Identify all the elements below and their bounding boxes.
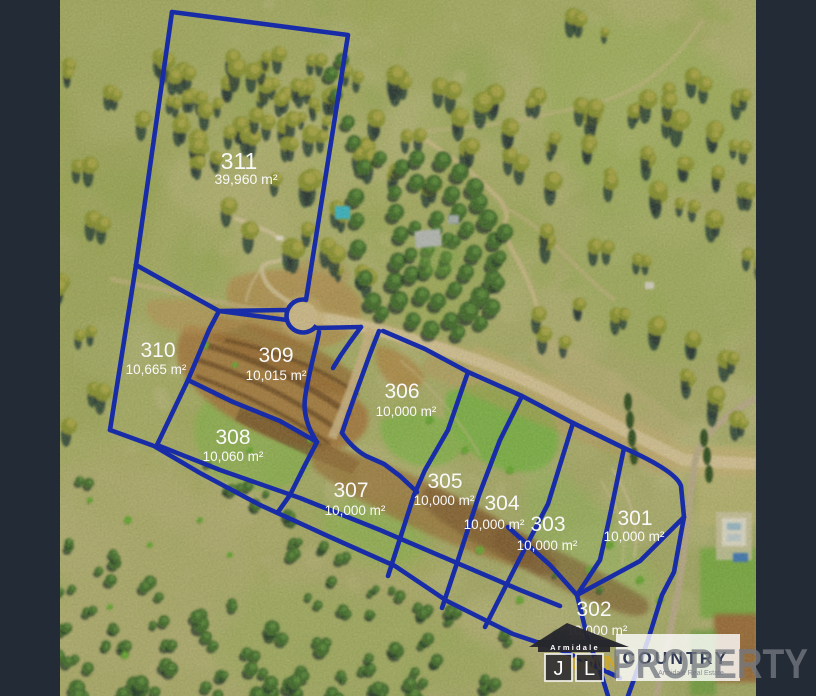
svg-text:Armidale: Armidale (550, 643, 600, 652)
svg-text:308: 308 (215, 426, 250, 449)
svg-text:L: L (584, 658, 595, 680)
svg-text:305: 305 (427, 470, 462, 493)
svg-text:302: 302 (576, 598, 611, 621)
svg-text:310: 310 (140, 339, 175, 362)
svg-text:10,665 m²: 10,665 m² (126, 362, 187, 377)
svg-text:301: 301 (617, 507, 652, 530)
svg-text:307: 307 (333, 479, 368, 502)
svg-text:10,015 m²: 10,015 m² (246, 368, 307, 383)
svg-text:10,000 m²: 10,000 m² (325, 503, 386, 518)
svg-text:304: 304 (484, 492, 519, 515)
svg-text:10,000 m²: 10,000 m² (604, 529, 665, 544)
svg-text:10,000 m²: 10,000 m² (414, 493, 475, 508)
svg-text:10,000 m²: 10,000 m² (517, 538, 578, 553)
svg-text:10,000 m²: 10,000 m² (464, 517, 525, 532)
svg-text:309: 309 (258, 344, 293, 367)
svg-text:306: 306 (384, 380, 419, 403)
svg-text:PROPERTY: PROPERTY (612, 640, 808, 687)
svg-text:10,060 m²: 10,060 m² (203, 449, 264, 464)
svg-text:39,960 m²: 39,960 m² (214, 171, 277, 187)
svg-text:303: 303 (530, 513, 565, 536)
svg-text:J: J (554, 658, 564, 680)
svg-text:10,000 m²: 10,000 m² (376, 404, 437, 419)
